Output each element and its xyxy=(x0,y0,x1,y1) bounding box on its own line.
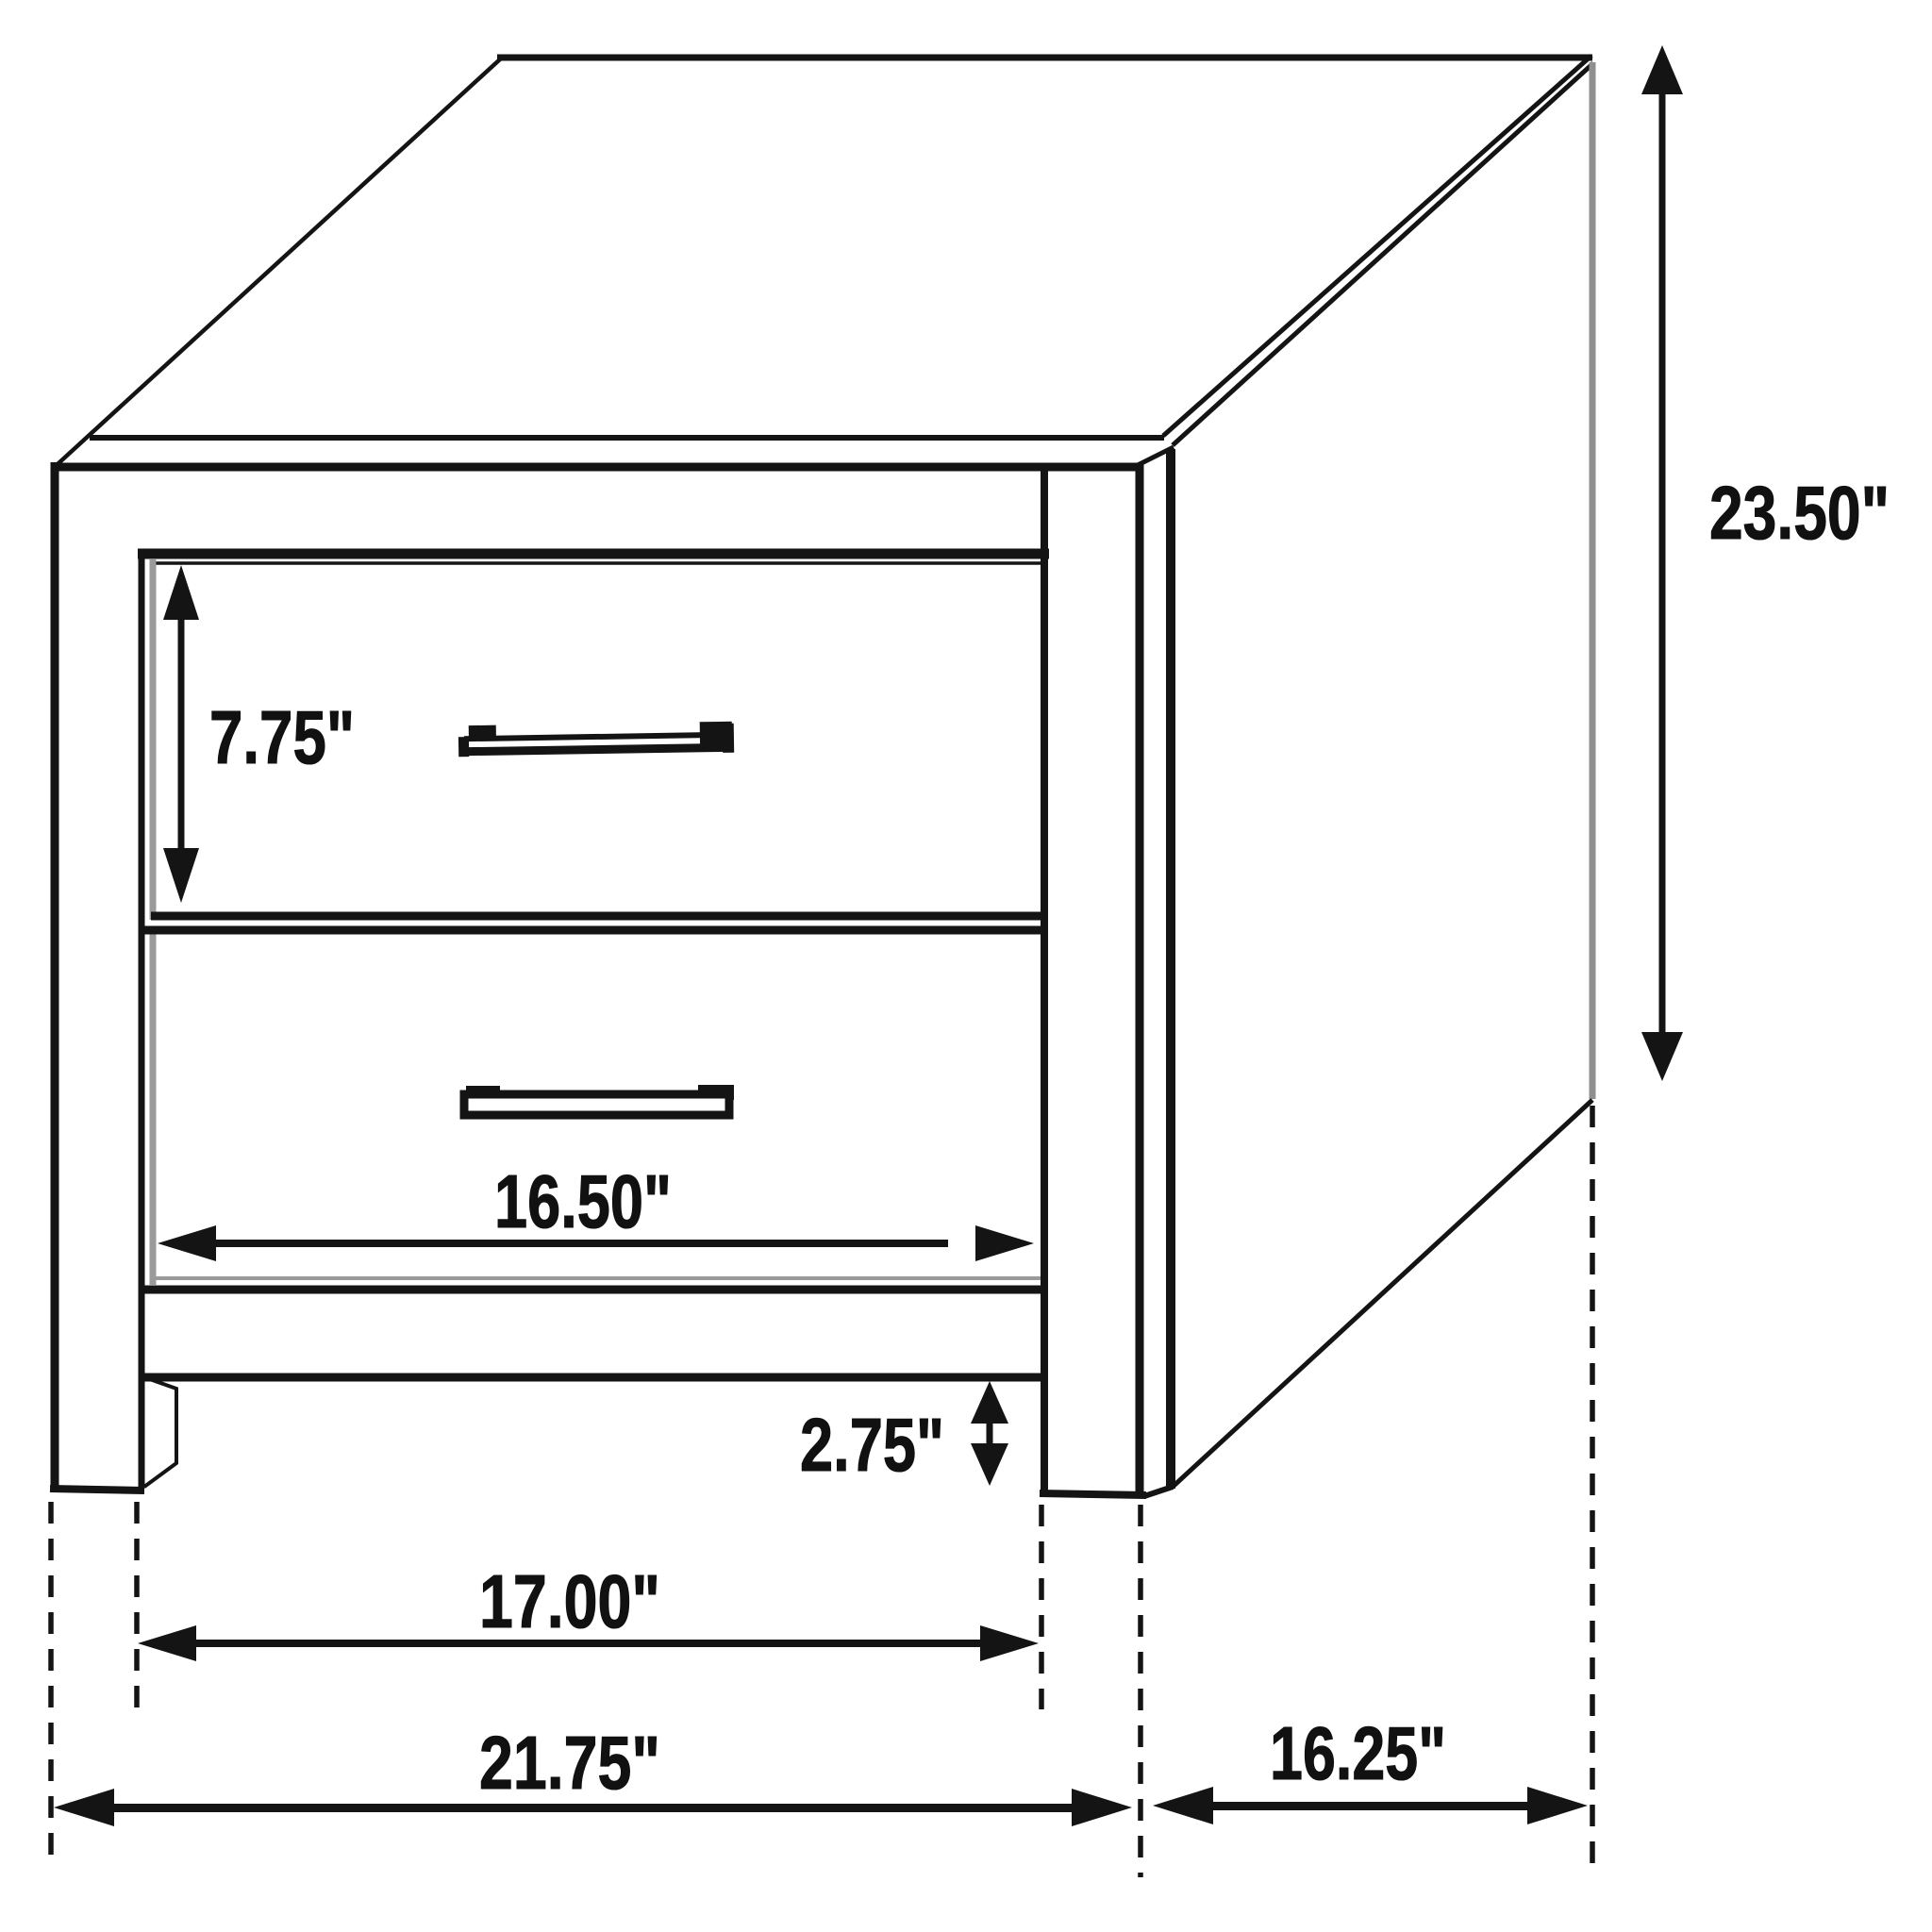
svg-text:16.25": 16.25" xyxy=(1270,1711,1446,1795)
svg-text:21.75": 21.75" xyxy=(479,1721,660,1805)
svg-text:7.75": 7.75" xyxy=(209,695,355,779)
svg-text:2.75": 2.75" xyxy=(800,1403,944,1487)
svg-text:16.50": 16.50" xyxy=(494,1159,672,1243)
svg-text:17.00": 17.00" xyxy=(479,1559,660,1643)
svg-text:23.50": 23.50" xyxy=(1709,471,1890,555)
